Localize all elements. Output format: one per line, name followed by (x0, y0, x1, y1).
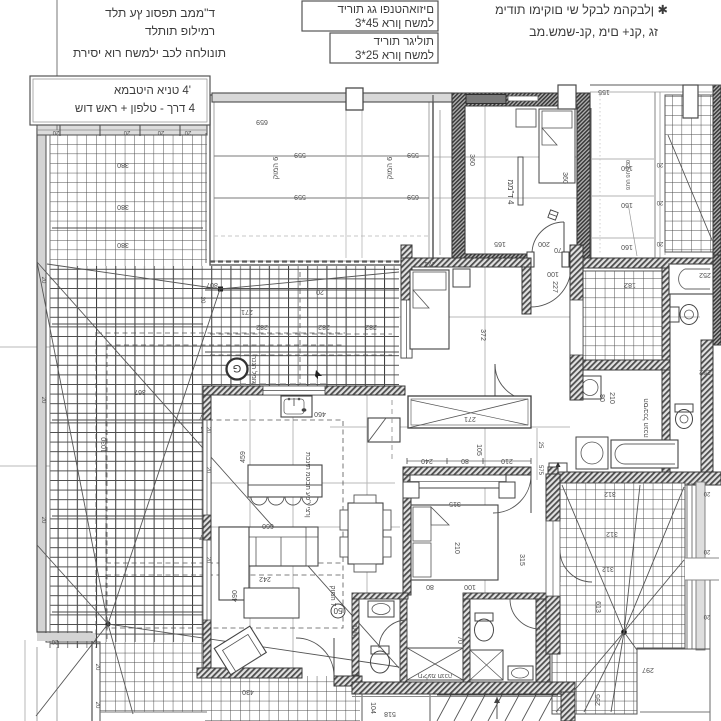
svg-text:מידות ומיקום יש לקבל מהקבלן ✱: מידות ומיקום יש לקבל מהקבלן ✱ (495, 3, 668, 17)
svg-text:271: 271 (241, 308, 253, 315)
svg-text:20: 20 (51, 638, 58, 644)
svg-text:252: 252 (699, 368, 711, 375)
svg-text:210: 210 (453, 542, 460, 554)
svg-text:20: 20 (656, 199, 663, 205)
svg-text:100: 100 (464, 583, 476, 590)
svg-text:הכנה למזגן: הכנה למזגן (250, 355, 258, 386)
svg-text:80: 80 (426, 583, 434, 590)
svg-text:G: G (233, 362, 242, 374)
svg-text:הכנה לכביסה: הכנה לכביסה (642, 398, 650, 437)
svg-text:460: 460 (314, 410, 326, 417)
svg-text:דלתות פולימר: דלתות פולימר (145, 24, 215, 38)
svg-text:430: 430 (242, 688, 254, 695)
svg-text:252: 252 (699, 271, 711, 278)
svg-text:תכנית מטבח עפ"י יצרן: תכנית מטבח עפ"י יצרן (304, 452, 311, 518)
svg-text:20: 20 (316, 288, 324, 295)
svg-text:80: 80 (598, 394, 605, 402)
svg-text:613: 613 (594, 601, 601, 613)
svg-text:559: 559 (294, 151, 306, 158)
svg-text:20: 20 (703, 613, 710, 619)
svg-text:295: 295 (595, 694, 602, 706)
svg-text:דלת עץ נוספת בממ"ד: דלת עץ נוספת בממ"ד (105, 6, 215, 20)
svg-text:100: 100 (547, 270, 559, 277)
svg-text:242: 242 (259, 575, 271, 582)
svg-text:312: 312 (602, 565, 614, 572)
svg-text:490: 490 (232, 590, 239, 602)
svg-text:360: 360 (468, 154, 475, 166)
svg-text:20: 20 (205, 467, 211, 473)
svg-text:360: 360 (561, 172, 568, 184)
svg-text:297: 297 (642, 666, 654, 673)
svg-text:659: 659 (256, 118, 268, 125)
svg-text:אמבטיה אינט 4': אמבטיה אינט 4' (114, 85, 191, 97)
svg-text:50: 50 (333, 606, 342, 615)
svg-text:282: 282 (365, 323, 377, 330)
svg-text:559: 559 (294, 193, 306, 200)
svg-text:70: 70 (554, 246, 562, 253)
svg-text:380: 380 (117, 241, 129, 248)
svg-text:פתח פח 130: פתח פח 130 (626, 160, 632, 190)
svg-text:20: 20 (205, 427, 211, 433)
svg-text:210: 210 (501, 457, 513, 464)
svg-text:518: 518 (384, 710, 396, 717)
svg-text:315: 315 (449, 500, 461, 507)
svg-text:271: 271 (464, 415, 476, 422)
svg-text:240: 240 (421, 457, 433, 464)
svg-text:20: 20 (184, 129, 191, 135)
svg-text:575: 575 (537, 465, 543, 476)
svg-text:367: 367 (134, 388, 146, 395)
svg-text:380: 380 (117, 161, 129, 168)
svg-text:282: 282 (318, 323, 330, 330)
svg-text:20: 20 (94, 702, 100, 709)
svg-text:דירות רגילות: דירות רגילות (374, 35, 434, 48)
svg-text:659: 659 (407, 193, 419, 200)
svg-text:3*45 ארון חשמל: 3*45 ארון חשמל (355, 17, 434, 30)
svg-text:20: 20 (40, 397, 46, 404)
svg-text:קומה 7: קומה 7 (329, 585, 336, 606)
svg-text:160: 160 (621, 201, 633, 208)
svg-text:282: 282 (256, 323, 268, 330)
svg-text:271: 271 (424, 260, 436, 267)
svg-text:80: 80 (461, 457, 469, 464)
svg-text:104: 104 (369, 702, 376, 714)
svg-text:20: 20 (40, 517, 46, 524)
svg-text:227: 227 (551, 281, 558, 293)
svg-text:3*25 ארון חשמל: 3*25 ארון חשמל (355, 49, 434, 62)
svg-text:דירות גג ופנטהאוזים: דירות גג ופנטהאוזים (337, 4, 434, 16)
svg-text:210: 210 (608, 392, 615, 404)
svg-text:20: 20 (123, 129, 130, 135)
svg-text:105: 105 (475, 444, 482, 456)
svg-text:20: 20 (199, 297, 205, 304)
svg-text:380: 380 (117, 203, 129, 210)
svg-text:312: 312 (604, 490, 616, 497)
svg-text:312: 312 (606, 530, 618, 537)
svg-text:70: 70 (456, 636, 463, 644)
svg-text:1030: 1030 (101, 437, 108, 453)
svg-text:שוד שאר + ןופלט - ךרד 4: שוד שאר + ןופלט - ךרד 4 (75, 102, 196, 115)
svg-text:במ.שמש-נק, מים +נק, גז: במ.שמש-נק, מים +נק, גז (529, 25, 658, 39)
svg-text:315: 315 (518, 554, 525, 566)
svg-text:20: 20 (94, 664, 100, 671)
svg-text:372: 372 (479, 329, 486, 341)
svg-text:קומה 6: קומה 6 (271, 157, 280, 180)
svg-text:660: 660 (262, 522, 274, 529)
svg-text:160: 160 (621, 243, 633, 250)
svg-text:20: 20 (703, 490, 710, 496)
svg-text:ממ"ד 4: ממ"ד 4 (506, 180, 515, 205)
svg-text:20: 20 (656, 161, 663, 167)
svg-text:25: 25 (537, 442, 543, 449)
svg-text:20: 20 (656, 240, 663, 246)
svg-text:807: 807 (206, 281, 218, 288)
svg-text:20: 20 (52, 129, 59, 135)
svg-text:קומה 6: קומה 6 (385, 157, 394, 180)
svg-text:459: 459 (240, 451, 247, 463)
svg-text:185: 185 (350, 624, 357, 636)
svg-text:20: 20 (703, 548, 710, 554)
svg-text:תריסי אור חשמלי בכל החלונות: תריסי אור חשמלי בכל החלונות (73, 46, 226, 60)
svg-text:הכנת מעלית: הכנת מעלית (418, 672, 452, 680)
svg-text:182: 182 (624, 281, 636, 288)
svg-text:20: 20 (157, 129, 164, 135)
svg-text:559: 559 (407, 151, 419, 158)
svg-text:20: 20 (205, 557, 211, 563)
svg-text:155: 155 (598, 88, 610, 95)
svg-text:200: 200 (538, 240, 550, 247)
svg-text:165: 165 (494, 240, 506, 247)
